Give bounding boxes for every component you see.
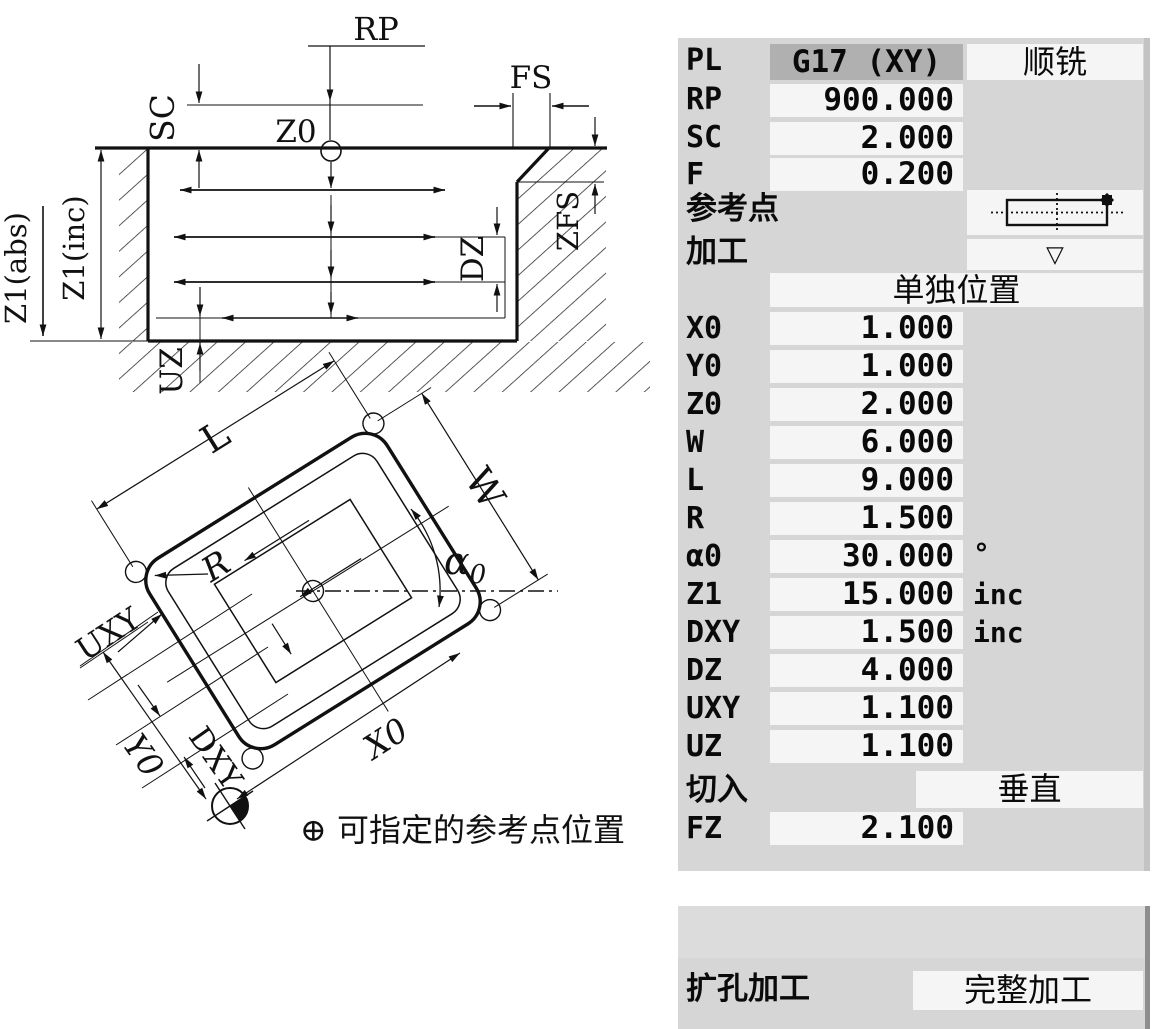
param-label-alpha0: α0 (686, 540, 722, 574)
label-uxy: UXY (70, 601, 148, 669)
param-field-pl[interactable]: G17 (XY) (770, 44, 963, 80)
param-label-plunge: 切入 (686, 773, 748, 807)
bottom-panel-highlight (678, 906, 1145, 958)
reference-point-icon (967, 190, 1143, 235)
machining-scope-panel (678, 906, 1150, 1029)
label-w: W (456, 460, 514, 516)
param-field-w[interactable]: 6.000 (770, 426, 963, 459)
param-label-f: F (686, 158, 704, 192)
param-field-z1[interactable]: 15.000 (770, 578, 963, 611)
label-z1-abs: Z1(abs) (0, 212, 33, 324)
param-field-sc[interactable]: 2.000 (770, 122, 963, 155)
param-field-x0[interactable]: 1.000 (770, 312, 963, 345)
param-field-dxy[interactable]: 1.500 (770, 616, 963, 649)
param-field-alpha0[interactable]: 30.000 (770, 540, 963, 573)
label-rp: RP (353, 10, 399, 48)
label-z1-inc: Z1(inc) (57, 195, 91, 300)
reference-point-position-field[interactable] (967, 190, 1143, 235)
plunge-mode-field[interactable]: 垂直 (916, 771, 1143, 808)
param-label-rp: RP (686, 83, 722, 117)
param-label-machining: 加工 (686, 235, 748, 269)
machining-scope-field[interactable]: 完整加工 (913, 971, 1143, 1010)
left-wall-hatch (119, 149, 148, 341)
param-field-z0[interactable]: 2.000 (770, 388, 963, 421)
param-field-l[interactable]: 9.000 (770, 464, 963, 497)
param-label-uxy: UXY (686, 692, 740, 726)
param-unit-z1: inc (973, 578, 1024, 611)
label-fs: FS (510, 60, 553, 96)
param-label-l: L (686, 464, 704, 498)
position-mode-header[interactable]: 单独位置 (770, 273, 1143, 307)
z0-reference-circle (321, 141, 341, 161)
panel-right-edge (1144, 38, 1150, 871)
pocket-milling-diagram: RP FS Z0 SC ZFS DZ Z1(abs) Z1(inc) UZ (0, 0, 678, 1029)
param-label-pl: PL (686, 44, 722, 78)
param-label-z0: Z0 (686, 388, 722, 422)
param-field-rp[interactable]: 900.000 (770, 84, 963, 117)
param-label-x0: X0 (686, 312, 722, 346)
param-label-z1: Z1 (686, 578, 722, 612)
label-l: L (193, 412, 238, 463)
label-r: R (194, 543, 238, 591)
machining-type-field[interactable]: ▽ (967, 239, 1143, 270)
param-label-sc: SC (686, 121, 722, 155)
param-field-y0[interactable]: 1.000 (770, 350, 963, 383)
label-dz: DZ (455, 236, 491, 282)
param-unit-dxy: inc (973, 616, 1024, 649)
param-label-y0: Y0 (686, 350, 722, 384)
param-field-dz[interactable]: 4.000 (770, 654, 963, 687)
label-zfs: ZFS (551, 191, 585, 251)
param-label-reference-point: 参考点 (686, 192, 779, 226)
origin-datum-symbol (207, 783, 253, 829)
floor-hatch (119, 342, 650, 392)
param-label-w: W (686, 426, 704, 460)
param-unit-alpha0: ° (973, 537, 990, 570)
param-field-fz[interactable]: 2.100 (770, 812, 963, 845)
param-label-boring: 扩孔加工 (686, 972, 810, 1006)
label-z0: Z0 (275, 114, 316, 150)
param-label-fz: FZ (686, 812, 722, 846)
param-label-dz: DZ (686, 654, 722, 688)
param-field-f[interactable]: 0.200 (770, 158, 963, 191)
label-x0: X0 (354, 710, 415, 769)
param-label-dxy: DXY (686, 616, 740, 650)
label-y0: Y0 (115, 727, 171, 784)
param-field-r[interactable]: 1.500 (770, 502, 963, 535)
param-label-r: R (686, 502, 704, 536)
param-label-uz: UZ (686, 730, 722, 764)
param-field-milling-direction[interactable]: 顺铣 (967, 44, 1143, 80)
cnc-pocket-milling-screen: RP FS Z0 SC ZFS DZ Z1(abs) Z1(inc) UZ (0, 0, 1167, 1029)
label-sc: SC (143, 94, 182, 142)
label-uz: UZ (154, 347, 190, 395)
reference-point-legend: ⊕ 可指定的参考点位置 (300, 811, 625, 849)
label-dxy: DXY (181, 720, 249, 796)
param-field-uxy[interactable]: 1.100 (770, 692, 963, 725)
param-field-uz[interactable]: 1.100 (770, 730, 963, 763)
label-alpha0: α0 (444, 539, 486, 590)
